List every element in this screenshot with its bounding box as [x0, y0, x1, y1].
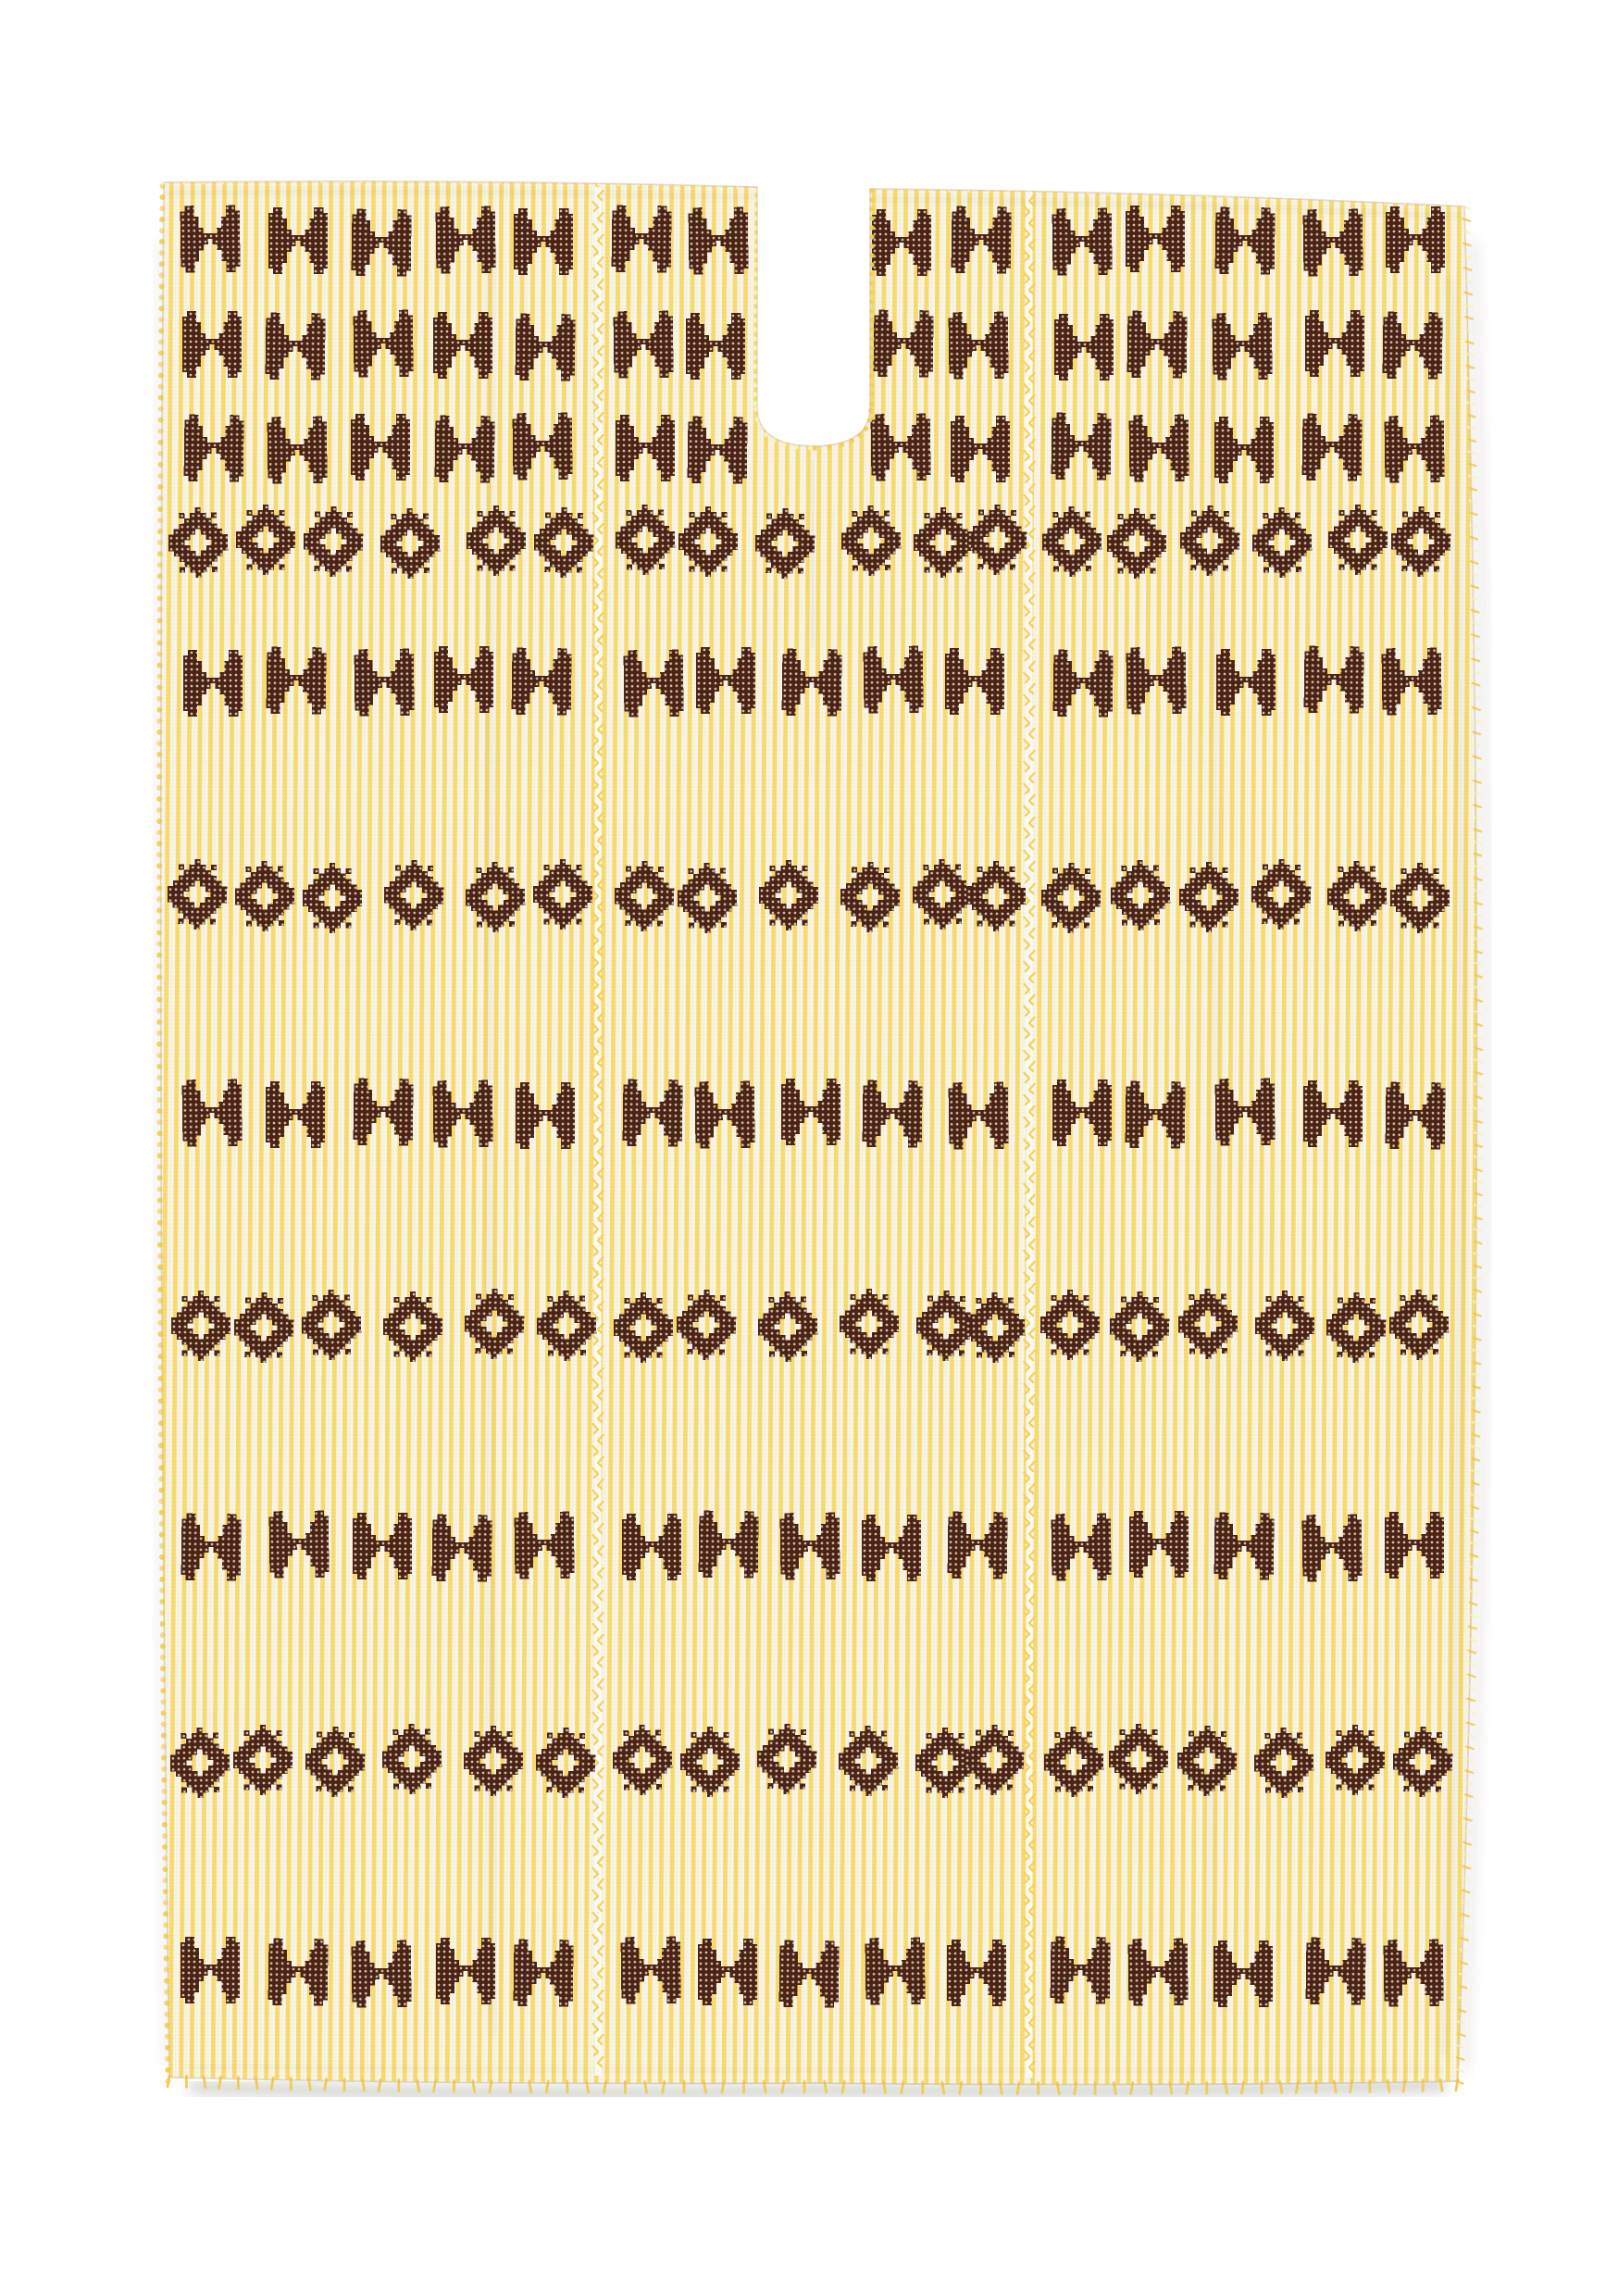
garment-svg — [0, 0, 1618, 2296]
photo-canvas — [0, 0, 1618, 2296]
neck-opening-stitching — [753, 188, 874, 450]
